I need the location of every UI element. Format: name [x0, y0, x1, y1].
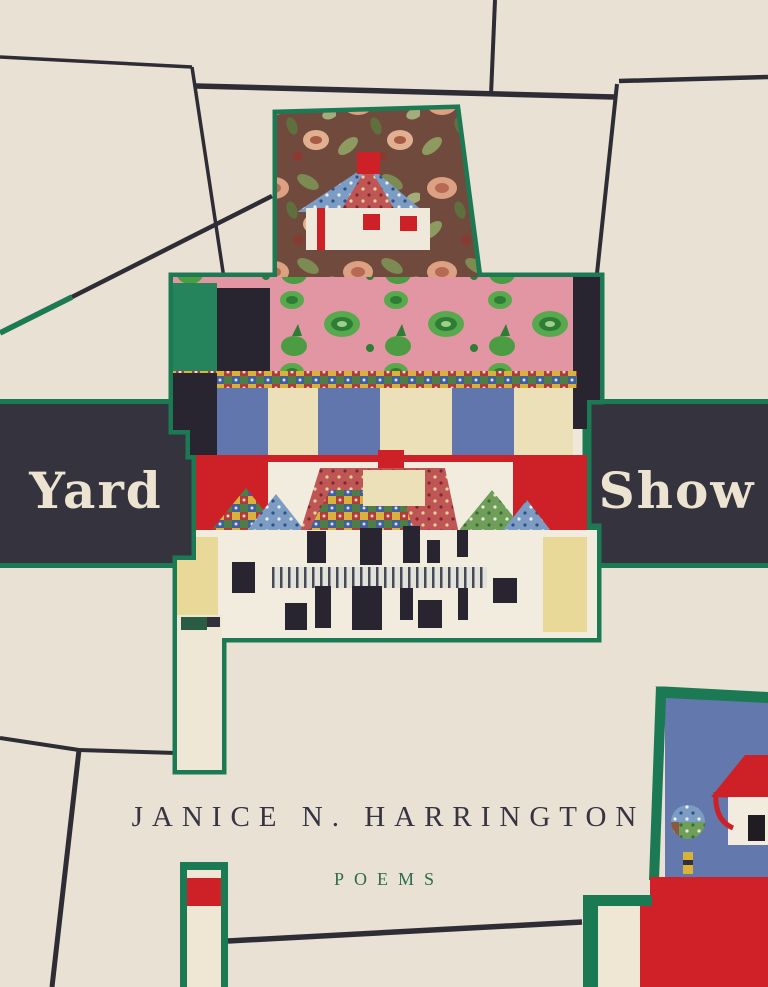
quilt-black-patch-left	[217, 288, 270, 372]
quilt-calico-strip	[173, 371, 577, 388]
fragment-cream-strip	[598, 906, 640, 987]
author-name: JANICE N. HARRINGTON	[0, 801, 768, 834]
genre-label: POEMS	[0, 869, 768, 890]
book-cover: Yard Show JANICE N. HARRINGTON POEMS	[0, 0, 768, 987]
fragment-red-field	[650, 877, 768, 987]
bottom-right-quilt-fragment	[583, 686, 768, 987]
title-word-right: Show	[586, 466, 768, 516]
fragment-red-edge	[640, 906, 652, 987]
title-word-left: Yard	[0, 466, 192, 516]
quilt-building-row	[176, 526, 597, 638]
quilt-leg-strip	[177, 615, 222, 770]
quilt-green-patch	[173, 283, 217, 372]
center-quilt	[173, 105, 600, 770]
